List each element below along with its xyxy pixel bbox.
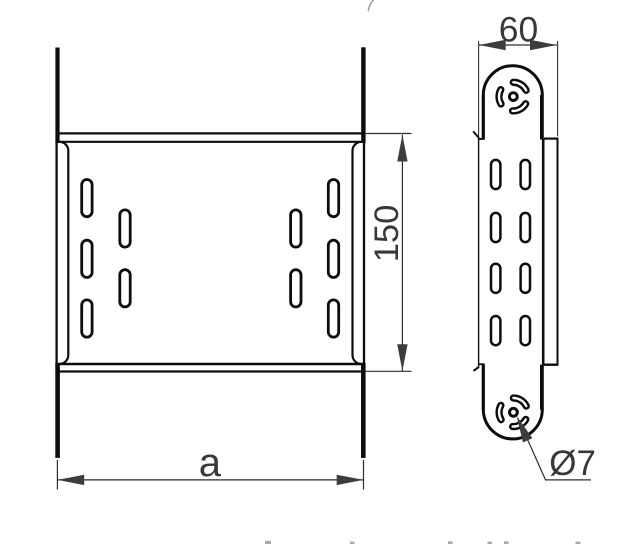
svg-text:a: a [199,441,222,485]
svg-text:Ø7: Ø7 [549,444,596,483]
svg-text:60: 60 [499,10,539,50]
svg-text:150: 150 [368,205,406,263]
